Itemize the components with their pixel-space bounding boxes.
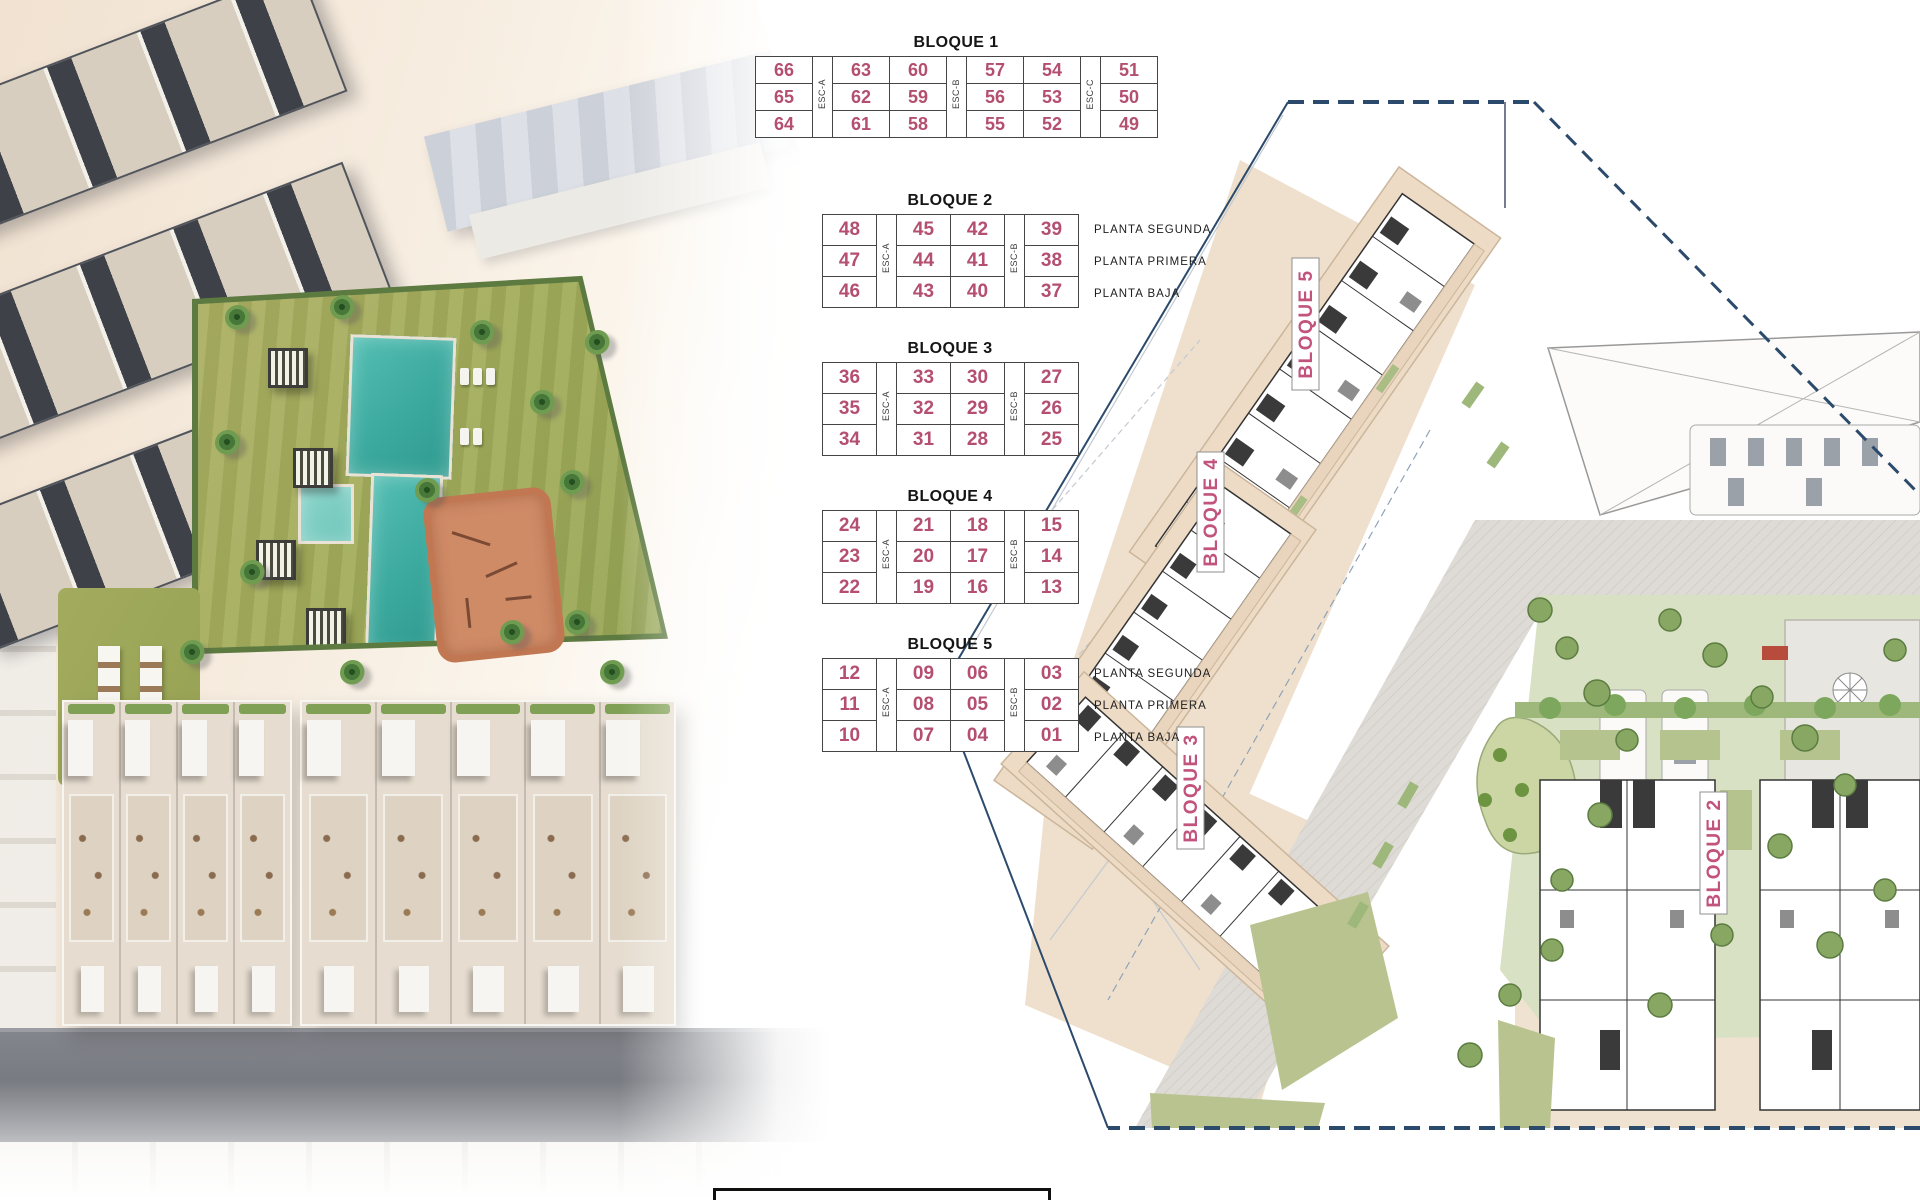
unit-number-cell: 04 <box>951 721 1005 752</box>
townhouse-terr <box>183 794 228 942</box>
unit-number-cell: 36 <box>823 363 877 394</box>
unit-number-cell: 07 <box>897 721 951 752</box>
unit-number-table: 24ESC-A2118ESC-B152320171422191613 <box>822 510 1079 604</box>
unit-number-cell: 01 <box>1025 721 1079 752</box>
unit-number-cell: 61 <box>833 111 890 138</box>
unit-number-cell: 56 <box>967 84 1024 111</box>
townhouse-hedge <box>530 704 595 714</box>
townhouse-unit <box>526 702 601 1024</box>
unit-number-cell: 49 <box>1101 111 1158 138</box>
palm-tree-icon <box>225 305 251 331</box>
unit-number-cell: 10 <box>823 721 877 752</box>
stairwell-cell: ESC-B <box>1005 215 1025 308</box>
townhouse-hedge <box>306 704 371 714</box>
unit-number-cell: 57 <box>967 57 1024 84</box>
townhouse-hedge <box>381 704 446 714</box>
stairwell-cell: ESC-B <box>947 57 967 138</box>
townhouse-core <box>382 720 415 776</box>
bloque-5-section: BLOQUE 5 12ESC-A0906ESC-B031108050210070… <box>822 636 1078 752</box>
sun-lounger <box>460 368 469 385</box>
townhouse-low <box>252 966 275 1012</box>
svg-text:BLOQUE 2: BLOQUE 2 <box>1704 798 1725 907</box>
bloque-2-unit-table: 48ESC-A4542ESC-B394744413846434037 <box>822 214 1078 308</box>
unit-number-cell: 20 <box>897 542 951 573</box>
stairwell-cell: ESC-C <box>1081 57 1101 138</box>
townhouse-terr <box>69 794 114 942</box>
unit-number-cell: 02 <box>1025 690 1079 721</box>
palm-tree-icon <box>330 295 356 321</box>
unit-number-cell: 25 <box>1025 425 1079 456</box>
unit-number-cell: 39 <box>1025 215 1079 246</box>
unit-number-cell: 16 <box>951 573 1005 604</box>
unit-number-cell: 34 <box>823 425 877 456</box>
stairwell-cell: ESC-A <box>877 363 897 456</box>
unit-number-cell: 65 <box>756 84 813 111</box>
unit-number-cell: 28 <box>951 425 1005 456</box>
bloque-1-unit-table: 66ESC-A6360ESC-B5754ESC-C516562595653506… <box>755 56 1157 138</box>
pergola <box>306 608 346 648</box>
townhouse-low <box>81 966 104 1012</box>
plan-label-bloque-2: BLOQUE 2 <box>1700 792 1727 914</box>
bloque-title: BLOQUE 1 <box>755 34 1157 52</box>
unit-number-cell: 06 <box>951 659 1005 690</box>
palm-tree-icon <box>180 640 206 666</box>
townhouse-low <box>195 966 218 1012</box>
townhouse-terr <box>533 794 593 942</box>
townhouse-unit <box>178 702 235 1024</box>
unit-number-cell: 19 <box>897 573 951 604</box>
unit-number-cell: 44 <box>897 246 951 277</box>
bloque-4-unit-table: 24ESC-A2118ESC-B152320171422191613 <box>822 510 1078 604</box>
planta-baja-label: PLANTA BAJA <box>1094 732 1211 744</box>
unit-number-cell: 62 <box>833 84 890 111</box>
planta-labels-bloque-2: PLANTA SEGUNDA PLANTA PRIMERA PLANTA BAJ… <box>1094 214 1211 310</box>
bloque-3-unit-table: 36ESC-A3330ESC-B273532292634312825 <box>822 362 1078 456</box>
unit-number-cell: 55 <box>967 111 1024 138</box>
townhouse-low <box>548 966 579 1012</box>
stairwell-cell: ESC-A <box>877 511 897 604</box>
unit-number-cell: 48 <box>823 215 877 246</box>
townhouse-unit <box>121 702 178 1024</box>
pergola <box>268 348 308 388</box>
unit-number-cell: 21 <box>897 511 951 542</box>
planta-baja-label: PLANTA BAJA <box>1094 288 1211 300</box>
sun-lounger <box>486 368 495 385</box>
palm-tree-icon <box>340 660 366 686</box>
unit-number-cell: 23 <box>823 542 877 573</box>
townhouse-terr <box>309 794 369 942</box>
unit-number-cell: 11 <box>823 690 877 721</box>
unit-number-cell: 24 <box>823 511 877 542</box>
unit-number-cell: 31 <box>897 425 951 456</box>
unit-number-cell: 15 <box>1025 511 1079 542</box>
palm-tree-icon <box>415 478 441 504</box>
townhouse-unit <box>377 702 452 1024</box>
townhouse-hedge <box>239 704 286 714</box>
townhouse-row <box>62 700 292 1026</box>
stairwell-cell: ESC-A <box>877 659 897 752</box>
bloque-title: BLOQUE 4 <box>822 488 1078 506</box>
unit-number-cell: 13 <box>1025 573 1079 604</box>
townhouse-unit <box>64 702 121 1024</box>
planta-primera-label: PLANTA PRIMERA <box>1094 256 1211 268</box>
unit-number-cell: 05 <box>951 690 1005 721</box>
legend-box-partial <box>713 1188 1051 1200</box>
unit-number-cell: 29 <box>951 394 1005 425</box>
unit-number-cell: 30 <box>951 363 1005 394</box>
townhouse-core <box>239 720 264 776</box>
bloque-title: BLOQUE 3 <box>822 340 1078 358</box>
bloque-4-section: BLOQUE 4 24ESC-A2118ESC-B152320171422191… <box>822 488 1078 604</box>
unit-number-cell: 43 <box>897 277 951 308</box>
palm-tree-icon <box>240 560 266 586</box>
swimming-pool <box>346 334 457 480</box>
townhouse-low <box>399 966 430 1012</box>
townhouse-unit <box>302 702 377 1024</box>
stairwell-cell: ESC-A <box>813 57 833 138</box>
townhouse-hedge <box>125 704 172 714</box>
townhouse-low <box>138 966 161 1012</box>
unit-number-cell: 03 <box>1025 659 1079 690</box>
palm-tree-icon <box>560 470 586 496</box>
palm-tree-icon <box>585 330 611 356</box>
bloque-2-section: BLOQUE 2 48ESC-A4542ESC-B394744413846434… <box>822 192 1078 308</box>
townhouse-hedge <box>182 704 229 714</box>
townhouse-hedge <box>456 704 521 714</box>
townhouse-core <box>68 720 93 776</box>
unit-number-cell: 60 <box>890 57 947 84</box>
unit-number-cell: 09 <box>897 659 951 690</box>
aerial-render <box>0 0 830 1200</box>
townhouse-core <box>457 720 490 776</box>
palm-tree-icon <box>565 610 591 636</box>
unit-number-cell: 40 <box>951 277 1005 308</box>
townhouse-low <box>324 966 355 1012</box>
playground <box>422 486 567 664</box>
unit-number-cell: 53 <box>1024 84 1081 111</box>
unit-number-cell: 22 <box>823 573 877 604</box>
unit-number-cell: 27 <box>1025 363 1079 394</box>
unit-number-cell: 38 <box>1025 246 1079 277</box>
townhouse-unit <box>452 702 527 1024</box>
unit-number-cell: 26 <box>1025 394 1079 425</box>
unit-number-table: 66ESC-A6360ESC-B5754ESC-C516562595653506… <box>755 56 1158 138</box>
townhouse-terr <box>126 794 171 942</box>
svg-text:BLOQUE 5: BLOQUE 5 <box>1296 269 1317 378</box>
unit-number-cell: 66 <box>756 57 813 84</box>
unit-number-cell: 45 <box>897 215 951 246</box>
stairwell-cell: ESC-B <box>1005 363 1025 456</box>
unit-number-cell: 32 <box>897 394 951 425</box>
townhouse-core <box>182 720 207 776</box>
sun-lounger <box>473 428 482 445</box>
unit-number-cell: 41 <box>951 246 1005 277</box>
townhouse-terr <box>383 794 443 942</box>
unit-number-cell: 18 <box>951 511 1005 542</box>
townhouse-low <box>473 966 504 1012</box>
bloque-title: BLOQUE 2 <box>822 192 1078 210</box>
stairwell-cell: ESC-A <box>877 215 897 308</box>
unit-number-cell: 50 <box>1101 84 1158 111</box>
sun-lounger <box>473 368 482 385</box>
unit-number-cell: 46 <box>823 277 877 308</box>
townhouse-core <box>125 720 150 776</box>
unit-number-cell: 64 <box>756 111 813 138</box>
svg-text:BLOQUE 4: BLOQUE 4 <box>1201 457 1222 566</box>
unit-number-cell: 51 <box>1101 57 1158 84</box>
unit-number-cell: 47 <box>823 246 877 277</box>
unit-number-table: 36ESC-A3330ESC-B273532292634312825 <box>822 362 1079 456</box>
bloque-3-section: BLOQUE 3 36ESC-A3330ESC-B273532292634312… <box>822 340 1078 456</box>
unit-number-cell: 14 <box>1025 542 1079 573</box>
palm-tree-icon <box>470 320 496 346</box>
townhouse-terr <box>240 794 285 942</box>
unit-number-cell: 52 <box>1024 111 1081 138</box>
planta-segunda-label: PLANTA SEGUNDA <box>1094 224 1211 236</box>
unit-number-cell: 12 <box>823 659 877 690</box>
bloque-5-unit-table: 12ESC-A0906ESC-B031108050210070401 <box>822 658 1078 752</box>
unit-number-cell: 08 <box>897 690 951 721</box>
pergola <box>293 448 333 488</box>
unit-number-cell: 63 <box>833 57 890 84</box>
unit-number-cell: 59 <box>890 84 947 111</box>
unit-number-cell: 58 <box>890 111 947 138</box>
unit-number-table: 12ESC-A0906ESC-B031108050210070401 <box>822 658 1079 752</box>
sun-lounger <box>460 428 469 445</box>
stairwell-cell: ESC-B <box>1005 659 1025 752</box>
unit-number-cell: 37 <box>1025 277 1079 308</box>
right-fade <box>620 0 830 1200</box>
palm-tree-icon <box>500 620 526 646</box>
plan-label-bloque-4: BLOQUE 4 <box>1197 452 1224 572</box>
townhouse-hedge <box>68 704 115 714</box>
stairwell-cell: ESC-B <box>1005 511 1025 604</box>
townhouse-terr <box>458 794 518 942</box>
unit-number-cell: 33 <box>897 363 951 394</box>
planta-labels-bloque-5: PLANTA SEGUNDA PLANTA PRIMERA PLANTA BAJ… <box>1094 658 1211 754</box>
planta-primera-label: PLANTA PRIMERA <box>1094 700 1211 712</box>
townhouse-core <box>531 720 564 776</box>
unit-number-cell: 42 <box>951 215 1005 246</box>
kids-pool <box>298 484 354 544</box>
unit-number-cell: 35 <box>823 394 877 425</box>
planta-segunda-label: PLANTA SEGUNDA <box>1094 668 1211 680</box>
palm-tree-icon <box>530 390 556 416</box>
townhouse-unit <box>235 702 290 1024</box>
bloque-1-section: BLOQUE 1 66ESC-A6360ESC-B5754ESC-C516562… <box>755 34 1157 138</box>
townhouse-core <box>307 720 340 776</box>
unit-number-cell: 17 <box>951 542 1005 573</box>
palm-tree-icon <box>215 430 241 456</box>
unit-number-cell: 54 <box>1024 57 1081 84</box>
plan-label-bloque-5: BLOQUE 5 <box>1292 258 1319 390</box>
brochure-page: BLOQUE 1 66ESC-A6360ESC-B5754ESC-C516562… <box>0 0 1920 1200</box>
unit-number-table: 48ESC-A4542ESC-B394744413846434037 <box>822 214 1079 308</box>
bloque-title: BLOQUE 5 <box>822 636 1078 654</box>
